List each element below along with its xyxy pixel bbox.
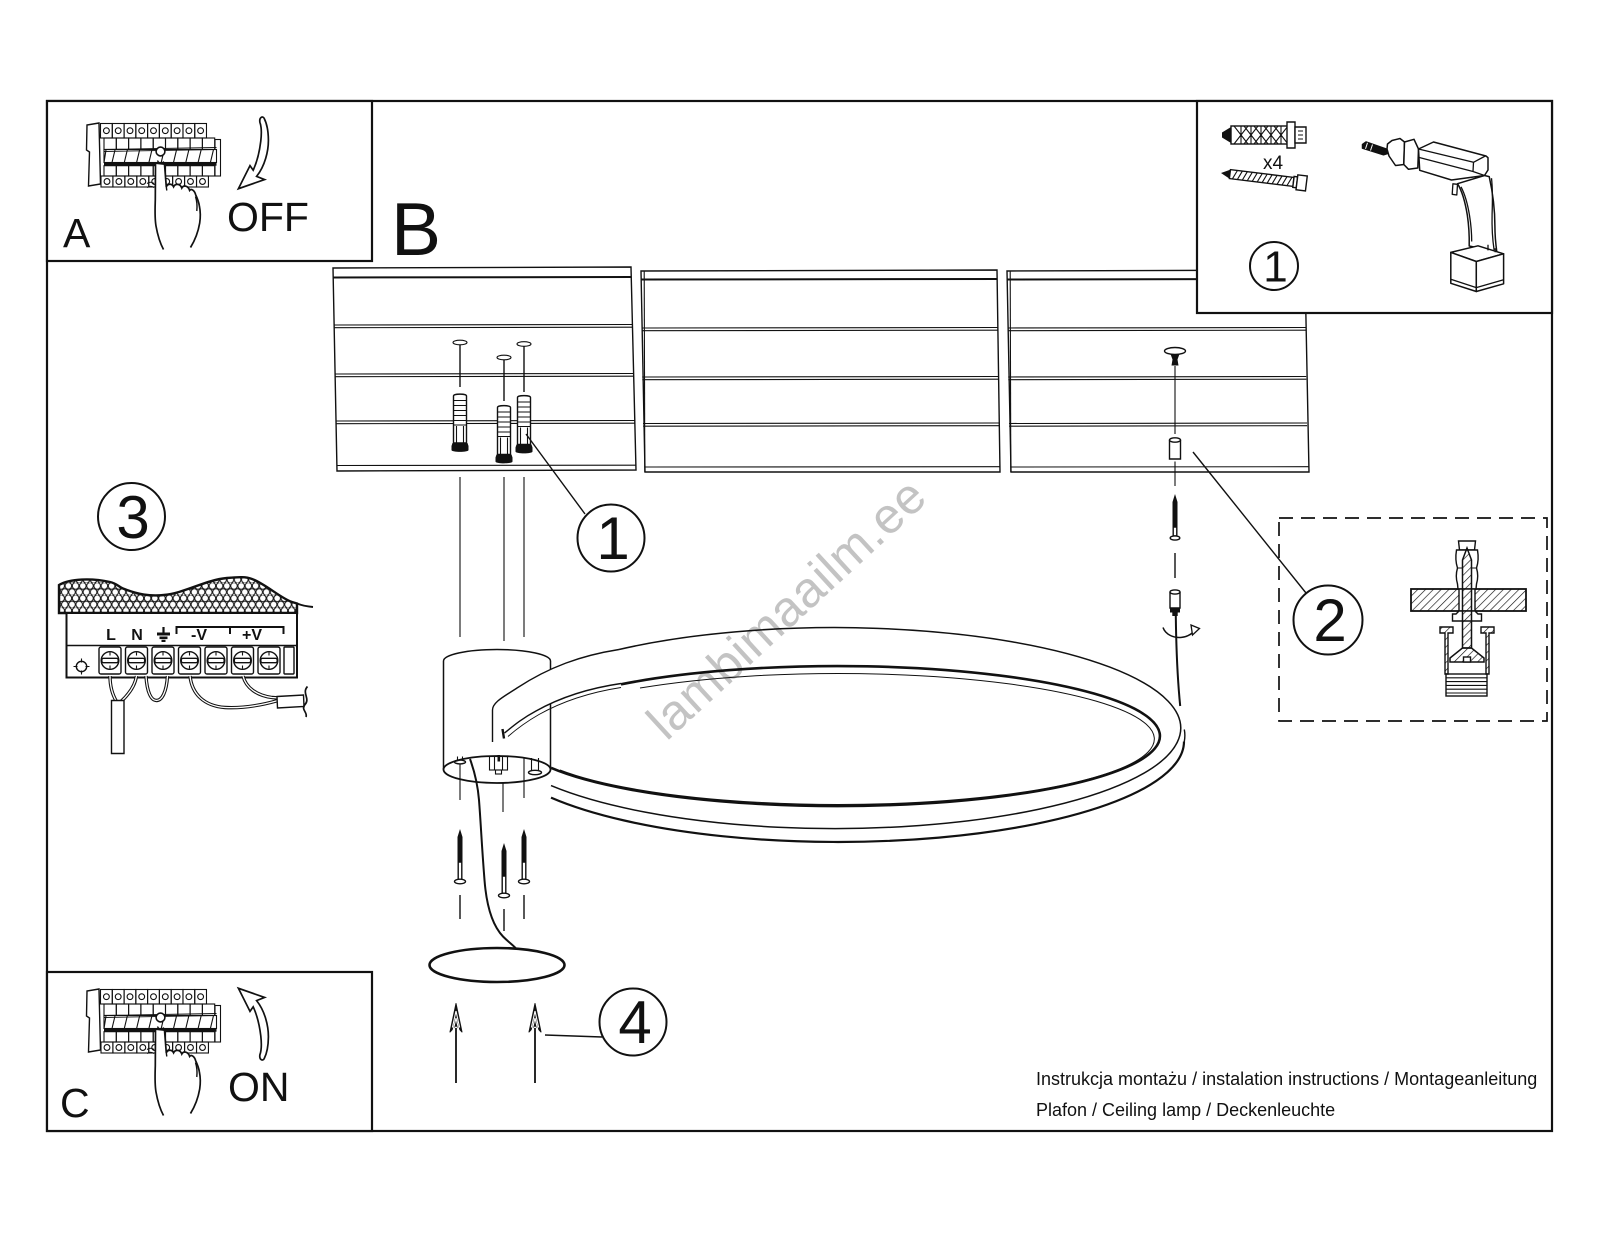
svg-text:+V: +V — [242, 627, 262, 644]
svg-text:OFF: OFF — [227, 194, 309, 240]
svg-text:2: 2 — [1313, 587, 1346, 654]
svg-text:N: N — [131, 627, 143, 644]
svg-text:Instrukcja montażu / instalati: Instrukcja montażu / instalation instruc… — [1036, 1069, 1537, 1089]
svg-text:1: 1 — [596, 505, 629, 572]
svg-text:-V: -V — [191, 627, 207, 644]
svg-text:B: B — [391, 187, 441, 271]
svg-text:4: 4 — [618, 989, 651, 1056]
svg-text:L: L — [106, 627, 116, 644]
svg-text:Plafon / Ceiling lamp / Decken: Plafon / Ceiling lamp / Deckenleuchte — [1036, 1100, 1335, 1120]
svg-text:A: A — [63, 210, 91, 256]
svg-text:3: 3 — [116, 484, 149, 551]
svg-text:C: C — [60, 1080, 90, 1126]
svg-text:x4: x4 — [1263, 153, 1284, 174]
svg-text:1: 1 — [1263, 243, 1287, 292]
svg-text:ON: ON — [228, 1064, 290, 1110]
